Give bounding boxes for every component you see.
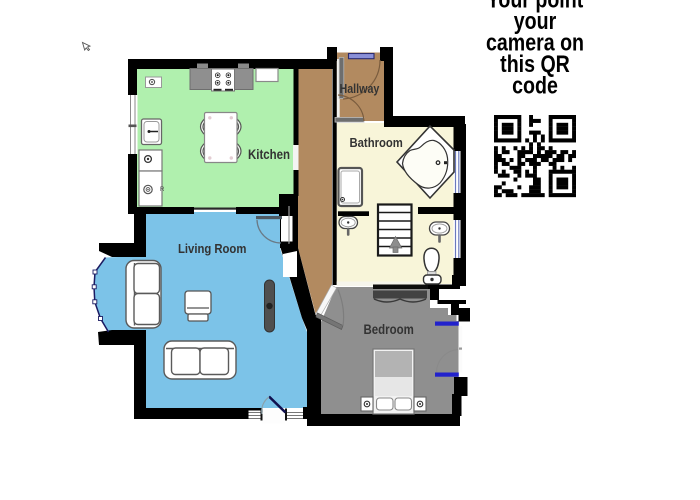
svg-text:code: code	[512, 71, 558, 99]
svg-text:Kitchen: Kitchen	[248, 147, 290, 162]
svg-text:Hallway: Hallway	[340, 82, 380, 96]
svg-text:Bedroom: Bedroom	[364, 322, 414, 337]
svg-text:R: R	[160, 187, 165, 193]
svg-text:Living Room: Living Room	[178, 241, 246, 256]
svg-text:Bathroom: Bathroom	[350, 135, 403, 150]
